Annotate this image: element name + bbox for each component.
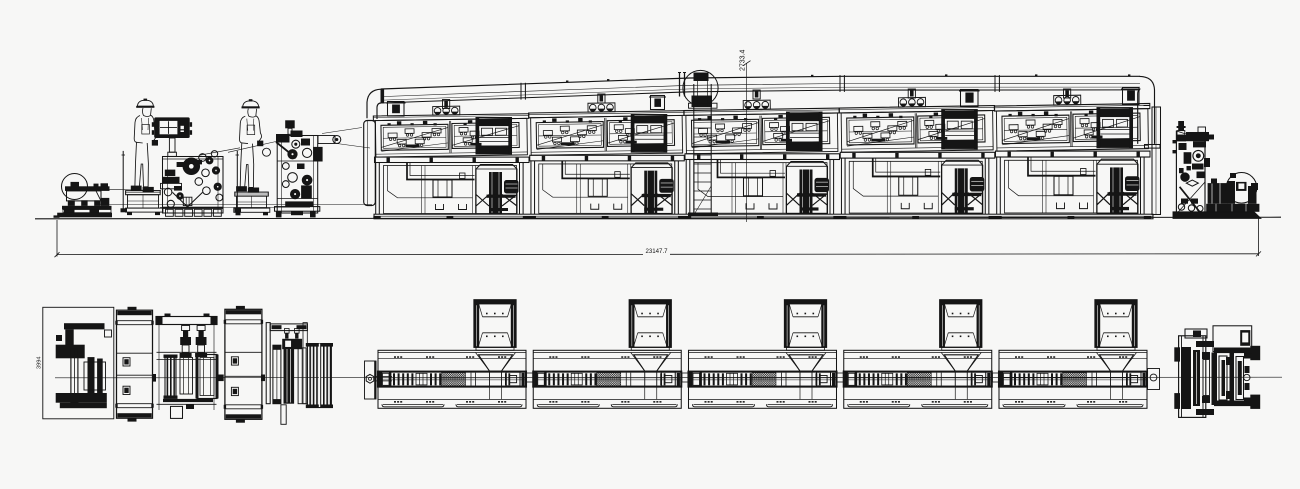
svg-text:23147.7: 23147.7 xyxy=(646,248,669,255)
svg-text:3994: 3994 xyxy=(36,357,42,369)
svg-text:2733.4: 2733.4 xyxy=(740,49,747,71)
